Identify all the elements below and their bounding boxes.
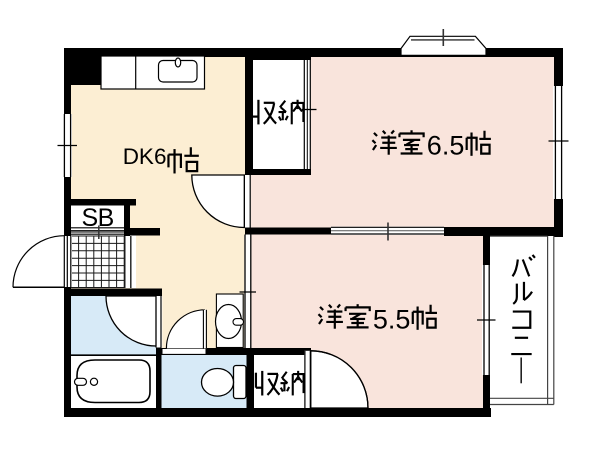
svg-text:DK6: DK6 <box>123 144 167 169</box>
svg-text:6.5: 6.5 <box>427 130 465 160</box>
svg-text:5.5: 5.5 <box>373 305 411 335</box>
